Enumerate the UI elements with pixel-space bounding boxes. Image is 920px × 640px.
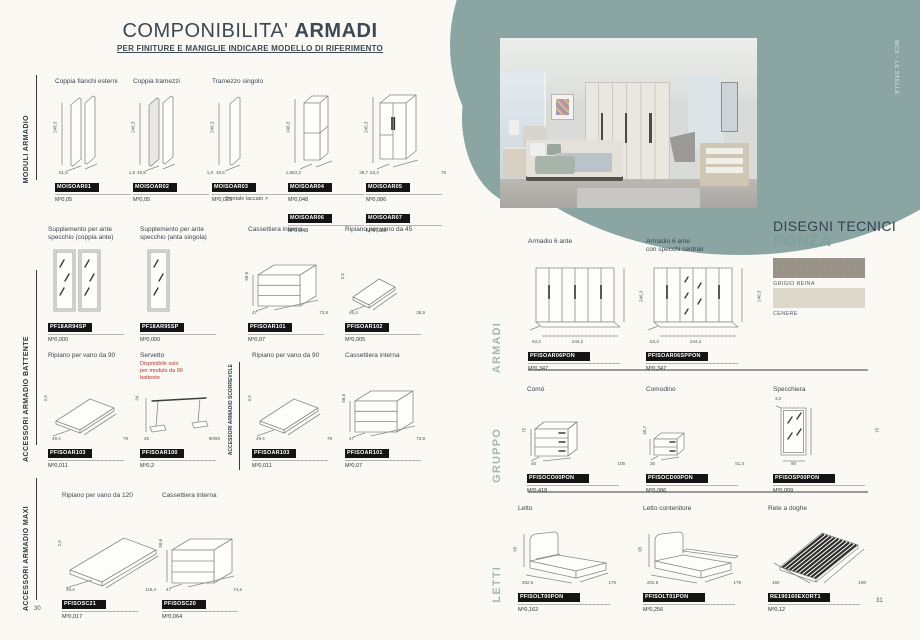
product-label: Ripiano per vano da 45 xyxy=(345,226,427,243)
dim-height: 246,3 xyxy=(131,122,136,133)
dim-width: 244,2 xyxy=(690,340,701,345)
dim-depth: 47 xyxy=(166,588,171,593)
open-column-diagram: 246,3 53,3 38,7 xyxy=(288,89,370,175)
product-item-pfisoar100: Servetto Disponibile solo per modulo da … xyxy=(140,352,222,469)
dim-height: 34 xyxy=(135,395,140,400)
finish-swatch-grigio-reina xyxy=(773,258,865,278)
dim-depth: 47 xyxy=(349,437,354,442)
product-code-chip: PFISOLT00PON xyxy=(518,593,580,602)
product-code-chip: PFISOSC20 xyxy=(162,600,206,609)
product-item-letto: Letto 95 202,5 179 PFISOLT00PON M³0,162 xyxy=(518,505,618,613)
product-label: Cassettiera interna xyxy=(162,492,244,502)
product-volume: M³0,064 xyxy=(162,614,244,620)
dim-width: 79 xyxy=(327,437,332,442)
panel-single-diagram: 246,3 49,5 1,8 xyxy=(212,89,294,175)
dim-depth: 49,4 xyxy=(256,437,265,442)
dim-width: 49,5 xyxy=(137,171,146,176)
dim-width: 51,4 xyxy=(735,462,744,467)
product-volume: M³0,086 xyxy=(366,197,448,203)
product-code-chip: RE190160EXORT1 xyxy=(768,593,830,602)
mirror-door-diagram xyxy=(140,245,222,315)
photo-wardrobe-handle xyxy=(625,113,628,144)
product-label: Cassettiera interna xyxy=(345,352,427,361)
dim-depth: 46 xyxy=(531,462,536,467)
product-label: Letto contenitore xyxy=(643,505,743,517)
slatted-base-diagram: 160 190 xyxy=(768,519,868,585)
product-label: Armadio 6 ante con specchi centrali xyxy=(646,238,758,256)
dresser-diagram: 75 46 105 xyxy=(527,400,627,466)
page-number-right: 31 xyxy=(876,598,883,604)
product-item-pf18ar95sp: Supplemento per ante specchio (anta sing… xyxy=(140,226,222,343)
page-title: COMPONIBILITA' ARMADI xyxy=(40,20,460,43)
product-item-armadio-6-ante-specchi: Armadio 6 ante con specchi centrali 246,… xyxy=(646,238,758,372)
product-label xyxy=(366,78,448,87)
dim-depth: 46,4 xyxy=(349,311,358,316)
shelf-diagram: 2,5 46,4 38,9 xyxy=(345,245,427,315)
dim-depth: 63,3 xyxy=(650,340,659,345)
dim-width: 118,4 xyxy=(145,588,156,593)
finish-swatch-cenere xyxy=(773,288,865,308)
product-code-chip: MOISOAR02 xyxy=(133,183,177,192)
product-volume: M³0,07 xyxy=(345,463,427,469)
product-item-letto-contenitore: Letto contenitore 95 202,5 179 PFISOLT01… xyxy=(643,505,743,613)
product-label: Coppia tramezzi xyxy=(133,78,215,87)
product-item-comodino: Comodino 40,7 36 51,4 PFISOCD00PON M³0,0… xyxy=(646,386,746,494)
dim-height: 95 xyxy=(638,546,643,551)
page-title-bold: ARMADI xyxy=(295,20,378,42)
mirror-doors-diagram xyxy=(48,245,130,315)
product-code-chip: PFISOAR103 xyxy=(252,449,296,458)
product-label: Armadio 6 ante xyxy=(528,238,640,256)
dim-width: 160 xyxy=(772,581,780,586)
product-item-pfisosc21: Ripiano per vano da 120 2,5 49,4 118,4 P… xyxy=(62,492,158,620)
wardrobe-6-door-mirror-diagram: 246,3 63,3 244,2 xyxy=(646,258,758,344)
product-code-chip: MOISOAR06 xyxy=(288,214,332,223)
dim-depth: 47 xyxy=(252,311,257,316)
dim-length: 190 xyxy=(858,581,866,586)
dim-width: 53,3 xyxy=(292,171,301,176)
dim-length: 202,5 xyxy=(647,581,658,586)
photo-nightstand xyxy=(503,147,526,178)
brand-tab-vertical: MCS - LE STELLE xyxy=(893,40,899,95)
shelf-diagram: 2,5 49,4 79 xyxy=(48,363,130,441)
shelf-diagram: 2,5 49,4 79 xyxy=(252,363,334,441)
photo-lamp xyxy=(509,120,519,135)
product-code-chip: PFISOAR102 xyxy=(345,323,389,332)
dim-width: 105 xyxy=(617,462,625,467)
product-item-pfisosc20: Cassettiera interna 58,6 47 74,6 PFISOSC… xyxy=(162,492,244,620)
photo-rug xyxy=(577,188,700,208)
section-rule-battente xyxy=(36,270,37,445)
product-item-pf18ar94sp: Supplemento per ante specchio (coppia an… xyxy=(48,226,130,343)
product-code-chip: MOISOAR07 xyxy=(366,214,410,223)
dim-depth: 49,4 xyxy=(52,437,61,442)
product-item-pfisoar101: Cassettiera interna 58,6 47 73,9 PFISOAR… xyxy=(248,226,330,343)
dim-height: 246,3 xyxy=(757,291,762,302)
product-code-chip: PFISOCD00PON xyxy=(646,474,708,483)
product-volume: M³0,05 xyxy=(55,197,137,203)
collection-name: PONZA xyxy=(773,233,832,251)
note-frontale-laccato: frontale laccato > xyxy=(226,196,268,202)
bedroom-photo xyxy=(500,38,757,208)
disegni-tecnici-heading: DISEGNI TECNICI xyxy=(773,218,896,234)
dim-height: 246,3 xyxy=(210,122,215,133)
dim-width: 244,2 xyxy=(572,340,583,345)
product-code-chip: PFISOLT01PON xyxy=(643,593,705,602)
product-volume: M³0,017 xyxy=(62,614,158,620)
product-code-chip: MOISOAR03 xyxy=(212,183,256,192)
dim-height: 246,3 xyxy=(286,122,291,133)
dim-width: 73,9 xyxy=(416,437,425,442)
dim-height: 75 xyxy=(522,427,527,432)
dim-length: 202,5 xyxy=(522,581,533,586)
dim-width: 179 xyxy=(733,581,741,586)
sidebar-label-moduli-armadio: MODULI ARMADIO xyxy=(23,115,30,183)
product-item-moisoar01: Coppia fianchi esterni 248,3 51,5 1,8 MO… xyxy=(55,78,137,203)
product-code-chip: MOISOAR05 xyxy=(366,183,410,192)
product-volume: M³0,000 xyxy=(48,337,130,343)
product-item-como: Comò 75 46 105 PFISOCO00PON M³0,418 xyxy=(527,386,627,494)
photo-wardrobe-handle xyxy=(649,113,652,144)
product-code-chip: PFISOAR103 xyxy=(48,449,92,458)
product-volume: M³0,005 xyxy=(345,337,427,343)
product-volume: M³0,418 xyxy=(527,488,627,494)
section-label-letti: LETTI xyxy=(491,566,503,603)
dim-width: 179 xyxy=(608,581,616,586)
product-volume: M³0,2 xyxy=(140,463,222,469)
product-volume: M³0,011 xyxy=(48,463,130,469)
catalog-spread: COMPONIBILITA' ARMADI PER FINITURE E MAN… xyxy=(0,0,920,640)
dim-depth: 25 xyxy=(144,437,149,442)
product-item-moisoar05: 245,3 53,3 79 MOISOAR05 M³0,086 MOISOAR0… xyxy=(366,78,448,234)
dim-height: 95 xyxy=(513,546,518,551)
dim-height: 58,6 xyxy=(342,394,347,403)
dim-width: 49,5 xyxy=(216,171,225,176)
product-code-chip: PFISOCO00PON xyxy=(527,474,589,483)
section-rule-moduli xyxy=(36,75,37,180)
product-volume: M³0,05 xyxy=(133,197,215,203)
dim-thickness: 2,5 xyxy=(58,540,63,546)
dim-depth: 49,4 xyxy=(66,588,75,593)
product-volume: M³0,011 xyxy=(252,463,334,469)
dim-height: 40,7 xyxy=(643,426,648,435)
product-volume: M³0,07 xyxy=(248,337,330,343)
product-label: Ripiano per vano da 90 xyxy=(48,352,130,361)
bed-diagram: 95 202,5 179 xyxy=(518,519,618,585)
product-code-chip: PFISOSC21 xyxy=(62,600,106,609)
finish-swatch-label: GRIGIO REINA xyxy=(773,281,815,287)
dim-depth: 79 xyxy=(441,171,446,176)
section-rule-maxi xyxy=(36,478,37,600)
product-label: Specchiera xyxy=(773,386,873,398)
product-volume: M³0,256 xyxy=(643,607,743,613)
product-label: Coppia fianchi esterni xyxy=(55,78,137,87)
product-code-chip: PFISOAR100 xyxy=(140,449,184,458)
photo-chair xyxy=(670,132,696,163)
product-item-pfisoar103: Ripiano per vano da 90 2,5 49,4 79 PFISO… xyxy=(48,352,130,469)
dim-depth: 36 xyxy=(650,462,655,467)
dim-width: 79 xyxy=(123,437,128,442)
panel-pair-diagram: 246,3 49,5 1,8 xyxy=(133,89,215,175)
product-code-chip: MOISOAR04 xyxy=(288,183,332,192)
sidebar-label-accessori-battente: ACCESSORI ARMADIO BATTENTE xyxy=(23,336,30,462)
dim-width: 90/93 xyxy=(209,437,220,442)
product-label: Tramezzo singolo xyxy=(212,78,294,87)
internal-drawers-diagram: 58,6 47 74,6 xyxy=(162,504,244,592)
dim-height: 245,3 xyxy=(364,122,369,133)
product-code-chip: PF18AR94SP xyxy=(48,323,92,332)
storage-bed-diagram: 95 202,5 179 xyxy=(643,519,743,585)
long-shelf-diagram: 2,5 49,4 118,4 xyxy=(62,504,158,592)
product-item-moisoar03: Tramezzo singolo 246,3 49,5 1,8 MOISOAR0… xyxy=(212,78,294,203)
internal-drawers-diagram: 58,6 47 73,9 xyxy=(345,363,427,441)
product-volume: M³0,086 xyxy=(646,488,746,494)
product-code-chip: PFISOAR06SPPON xyxy=(646,352,708,361)
dim-width: 38,9 xyxy=(416,311,425,316)
product-item-moisoar04: 246,3 53,3 38,7 MOISOAR04 M³0,048 MOISOA… xyxy=(288,78,370,234)
product-label: Rete a doghe xyxy=(768,505,868,517)
product-code-chip: PF18AR95SP xyxy=(140,323,184,332)
photo-wall-art xyxy=(551,94,574,120)
product-item-pfisoar101-sc: Cassettiera interna 58,6 47 73,9 PFISOAR… xyxy=(345,352,427,469)
dim-height: 75 xyxy=(875,427,880,432)
photo-mirror xyxy=(721,82,738,132)
product-item-pfisoar103-sc: Ripiano per vano da 90 2,5 49,4 79 PFISO… xyxy=(252,352,334,469)
product-item-pfisoar102: Ripiano per vano da 45 2,5 46,4 38,9 PFI… xyxy=(345,226,427,343)
product-volume: M³0,347 xyxy=(528,366,640,372)
product-label: Supplemento per ante specchio (anta sing… xyxy=(140,226,222,243)
page-subtitle: PER FINITURE E MANIGLIE INDICARE MODELLO… xyxy=(40,44,460,53)
product-label: Comodino xyxy=(646,386,746,398)
dim-width: 74,6 xyxy=(233,588,242,593)
product-item-moisoar02: Coppia tramezzi 246,3 49,5 1,8 MOISOAR02… xyxy=(133,78,215,203)
product-volume: M³0,048 xyxy=(288,197,370,203)
product-code-chip: PFISOSP00PON xyxy=(773,474,835,483)
page-title-regular: COMPONIBILITA' xyxy=(122,20,288,42)
availability-warning: Disponibile solo per modulo da 90 batten… xyxy=(140,361,183,382)
product-volume: M³0,000 xyxy=(140,337,222,343)
product-code-chip: PFISOAR101 xyxy=(345,449,389,458)
product-label: Ripiano per vano da 90 xyxy=(252,352,334,361)
photo-wardrobe-handle xyxy=(601,113,604,144)
dim-depth: 63,3 xyxy=(532,340,541,345)
product-volume: M³0,347 xyxy=(646,366,758,372)
product-label: Ripiano per vano da 120 xyxy=(62,492,158,502)
dim-width: 73,9 xyxy=(319,311,328,316)
product-label xyxy=(288,78,370,87)
dim-thickness: 3,2 xyxy=(775,397,781,402)
scorrevole-divider-line xyxy=(239,362,240,470)
dim-width: 53,3 xyxy=(370,171,379,176)
mirror-diagram: 75 3,2 90 xyxy=(773,400,873,466)
product-label: Letto xyxy=(518,505,618,517)
internal-drawers-diagram: 58,6 47 73,9 xyxy=(248,245,330,315)
sidebar-label-accessori-scorrevole: ACCESSORI ARMADIO SCORREVOLE xyxy=(228,364,234,455)
photo-dresser xyxy=(700,143,749,186)
section-label-gruppo: GRUPPO xyxy=(491,428,503,483)
product-code-chip: PFISOAR101 xyxy=(248,323,292,332)
product-label: Comò xyxy=(527,386,627,398)
dim-thickness: 2,5 xyxy=(44,395,49,401)
finish-swatch-label: CENERE xyxy=(773,311,798,317)
product-code-chip: PFISOAR06PON xyxy=(528,352,590,361)
photo-bed xyxy=(526,140,624,177)
product-volume: M³0,009 xyxy=(773,488,873,494)
page-number-left: 30 xyxy=(34,606,41,612)
dim-thickness: 2,5 xyxy=(341,274,346,280)
product-volume: M³0,162 xyxy=(518,607,618,613)
warning-text: Disponibile solo per modulo da 90 batten… xyxy=(140,361,183,382)
section-label-armadi: ARMADI xyxy=(491,322,503,373)
dim-thickness: 2,5 xyxy=(248,395,253,401)
product-item-specchiera: Specchiera 75 3,2 90 PFISOSP00PON M³0,00… xyxy=(773,386,873,494)
panel-pair-diagram: 248,3 51,5 1,8 xyxy=(55,89,137,175)
product-item-rete-a-doghe: Rete a doghe 160 190 RE190160EXORT1 M³0,… xyxy=(768,505,868,613)
sidebar-label-accessori-maxi: ACCESSORI ARMADIO MAXI xyxy=(23,506,30,611)
product-code-chip: MOISOAR01 xyxy=(55,183,99,192)
wardrobe-6-door-diagram: 246,3 63,3 244,2 xyxy=(528,258,640,344)
dim-height: 246,3 xyxy=(639,291,644,302)
dim-width: 51,5 xyxy=(59,171,68,176)
nightstand-diagram: 40,7 36 51,4 xyxy=(646,400,746,466)
dim-width: 90 xyxy=(791,462,796,467)
double-column-diagram: 245,3 53,3 79 xyxy=(366,89,448,175)
product-label: Servetto xyxy=(140,352,222,361)
dim-height: 58,6 xyxy=(159,539,164,548)
dim-height: 248,3 xyxy=(53,122,58,133)
product-volume: M³0,12 xyxy=(768,607,868,613)
product-label: Supplemento per ante specchio (coppia an… xyxy=(48,226,130,243)
product-label: Cassettiera interna xyxy=(248,226,330,243)
product-item-armadio-6-ante: Armadio 6 ante 246,3 63,3 244,2 PFISOAR0… xyxy=(528,238,640,372)
dim-height: 58,6 xyxy=(245,272,250,281)
